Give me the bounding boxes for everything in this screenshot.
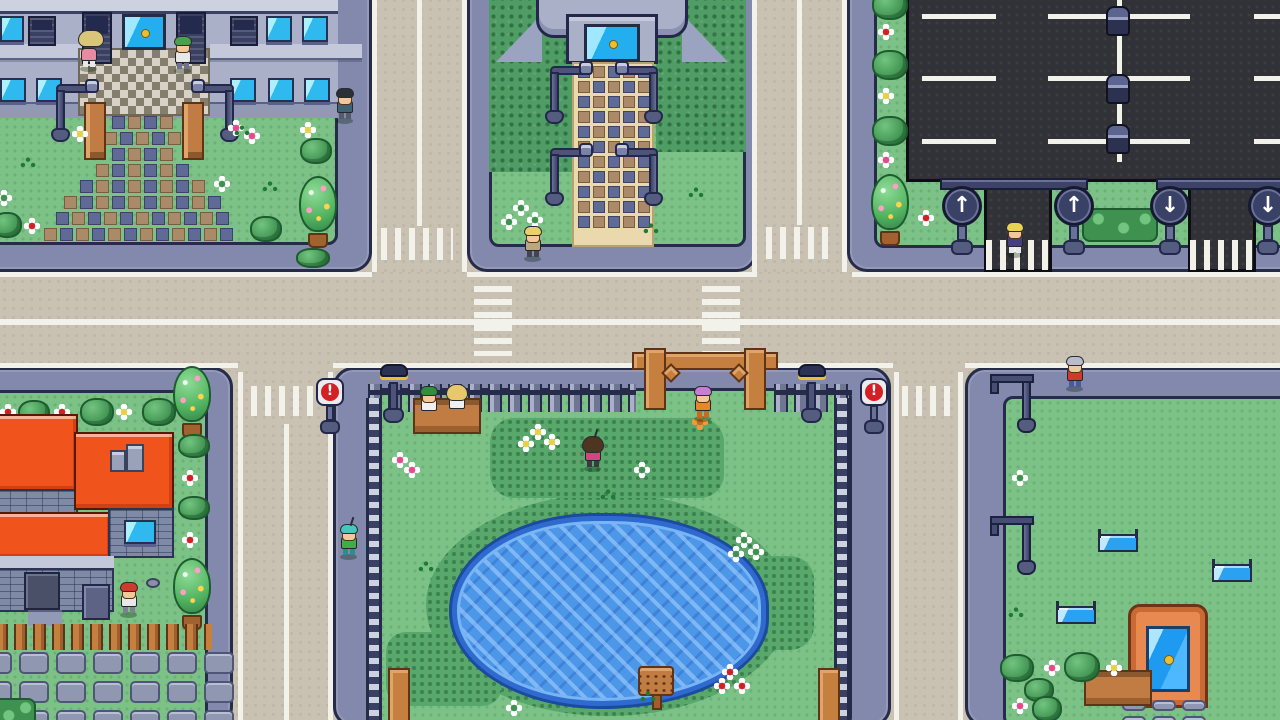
road-edge-line — [467, 272, 757, 277]
mosaic-tile — [144, 116, 157, 129]
flower-white — [0, 190, 12, 206]
sign-base — [864, 420, 884, 434]
mosaic-tile — [140, 228, 153, 241]
down-arrow-icon: ↓ — [1248, 186, 1280, 226]
grass-tuft — [1008, 606, 1024, 618]
lane-line — [372, 0, 377, 272]
lamp-base — [1017, 418, 1036, 433]
mosaic-tile — [160, 196, 173, 209]
tree — [870, 174, 910, 246]
window — [0, 16, 24, 42]
sign-base — [320, 420, 340, 434]
lane-line — [894, 372, 899, 720]
parking-stall-line — [1254, 76, 1280, 81]
paving-slab — [167, 681, 197, 703]
apartment-ledge — [210, 44, 362, 60]
bush — [296, 248, 330, 268]
flower-daisy — [544, 434, 560, 450]
path-tile — [593, 81, 605, 93]
grass-tuft — [688, 186, 704, 198]
mosaic-tile — [144, 148, 157, 161]
hedge-bush — [872, 50, 908, 80]
mosaic-tile — [208, 196, 221, 209]
npc-green-cap-man[interactable] — [172, 36, 196, 72]
lamp-cap — [798, 364, 826, 377]
mosaic-tile — [136, 132, 149, 145]
paving-slab — [0, 652, 12, 674]
park-gate-post — [744, 348, 766, 410]
sign-base — [1159, 240, 1181, 255]
parking-bollard — [1106, 74, 1130, 104]
lamp-pole — [56, 90, 65, 130]
mosaic-tile — [60, 228, 73, 241]
tower-door[interactable] — [584, 24, 640, 62]
lamp-knob — [579, 143, 593, 157]
street-lamp — [546, 60, 594, 126]
mosaic-tile — [96, 164, 109, 177]
terrace-window — [1056, 606, 1096, 624]
mosaic-tile — [72, 212, 85, 225]
mosaic-tile — [144, 196, 157, 209]
sign-post — [1165, 225, 1175, 241]
tree — [298, 176, 338, 248]
path-tile — [593, 186, 605, 198]
npc-blonde-woman[interactable] — [78, 30, 104, 70]
house-roof — [0, 414, 78, 492]
street-lamp — [546, 142, 594, 208]
flower-red — [918, 210, 934, 226]
parking-stall-line — [1124, 14, 1190, 19]
paving-slab — [93, 681, 123, 703]
paving-slab — [1152, 700, 1176, 711]
tree-crown — [173, 558, 211, 614]
lane-line — [958, 372, 963, 720]
mosaic-tile — [168, 132, 181, 145]
mosaic-tile — [128, 164, 141, 177]
mosaic-tile — [112, 116, 125, 129]
mosaic-tile — [184, 212, 197, 225]
npc-dark-haired-man[interactable] — [334, 88, 356, 122]
path-tile — [593, 111, 605, 123]
parking-stall-line — [922, 139, 996, 144]
park-south-post — [818, 668, 840, 720]
park-fence-north — [368, 384, 636, 412]
path-tile — [593, 66, 605, 78]
paving-slab — [1182, 700, 1206, 711]
down-arrow-icon: ↓ — [1150, 186, 1190, 226]
lamp-pole — [649, 154, 658, 194]
lamp-knob — [191, 79, 205, 93]
mosaic-tile — [92, 228, 105, 241]
npc-hair — [582, 436, 604, 453]
mosaic-tile — [112, 164, 125, 177]
flower-pink — [878, 152, 894, 168]
mosaic-tile — [104, 212, 117, 225]
crosswalk — [766, 227, 834, 259]
road-edge-line — [0, 272, 372, 277]
path-tile — [623, 216, 635, 228]
park-fence-west — [366, 398, 382, 720]
mosaic-tile — [156, 228, 169, 241]
sign-base — [1257, 240, 1279, 255]
terrace-top — [1070, 398, 1280, 522]
path-tile — [578, 216, 590, 228]
tree-crown — [173, 366, 211, 422]
flower-white — [728, 546, 744, 562]
crosswalk — [474, 286, 512, 356]
flower-daisy — [518, 436, 534, 452]
flower-red — [734, 678, 750, 694]
lamp-base — [51, 128, 70, 142]
terrace-window — [1212, 564, 1252, 582]
flower-red — [182, 532, 198, 548]
game-viewport: ↑↑↓↓!! — [0, 0, 1280, 720]
sign-base — [1063, 240, 1085, 255]
mosaic-tile — [176, 196, 189, 209]
up-arrow-icon: ↑ — [1054, 186, 1094, 226]
warning-sign[interactable]: ! — [316, 378, 348, 436]
path-tile — [593, 216, 605, 228]
paving-slab — [19, 652, 49, 674]
paving-slab — [204, 652, 234, 674]
sign-head: ! — [860, 378, 888, 406]
lamp-stub — [990, 381, 999, 394]
flower-pink — [404, 462, 420, 478]
street-lamp — [614, 60, 662, 126]
npc-purple-haired-girl[interactable] — [692, 386, 714, 420]
house-window — [124, 520, 156, 544]
tree-planter — [880, 231, 900, 246]
lane-line — [238, 372, 243, 720]
exclamation-icon: ! — [321, 383, 339, 401]
lamp-base — [801, 408, 822, 423]
up-arrow-icon: ↑ — [942, 186, 982, 226]
mosaic-tile — [160, 164, 173, 177]
lamp-base — [644, 110, 663, 124]
mosaic-tile — [80, 196, 93, 209]
npc-bench-sitter-leaf[interactable] — [418, 386, 440, 420]
flower-red — [24, 218, 40, 234]
mosaic-tile — [168, 212, 181, 225]
bush — [178, 496, 210, 520]
mosaic-tile — [80, 180, 93, 193]
sign-post — [326, 405, 334, 421]
mosaic-tile — [112, 148, 125, 161]
road-edge-line — [852, 272, 1280, 277]
mosaic-tile — [152, 132, 165, 145]
parking-bollard — [1106, 6, 1130, 36]
flower-red — [878, 24, 894, 40]
paving-slab — [1122, 716, 1146, 720]
tree-crown — [299, 176, 337, 232]
flower-white — [748, 544, 764, 560]
mosaic-tile — [192, 180, 205, 193]
terrace-window — [1098, 534, 1138, 552]
parking-exit-sign[interactable]: ↓ — [1248, 186, 1280, 256]
parking-stall-line — [922, 76, 996, 81]
parking-stall-line — [1124, 139, 1190, 144]
npc-blonde-walker[interactable] — [522, 226, 544, 260]
path-tile — [593, 126, 605, 138]
npc-afro-girl[interactable] — [582, 436, 604, 470]
grass-tuft — [643, 222, 659, 234]
lamp-base — [383, 408, 404, 423]
mosaic-tile — [64, 196, 77, 209]
flower-white — [214, 176, 230, 192]
paving-slab — [93, 710, 123, 720]
parking-entrance-sign[interactable]: ↑ — [1054, 186, 1098, 256]
paving-slab — [56, 710, 86, 720]
mosaic-tile — [56, 212, 69, 225]
mosaic-tile — [128, 148, 141, 161]
exclamation-icon: ! — [865, 383, 883, 401]
flower-red — [182, 470, 198, 486]
mosaic-tile — [124, 228, 137, 241]
sign-post — [1263, 225, 1273, 241]
mosaic-tile — [204, 228, 217, 241]
mosaic-tile — [108, 228, 121, 241]
mosaic-tile — [96, 196, 109, 209]
paving-slab — [167, 710, 197, 720]
grass-tuft — [418, 560, 434, 572]
lamp-knob — [615, 143, 629, 157]
flower-pink — [1044, 660, 1060, 676]
mosaic-tile — [128, 180, 141, 193]
npc-teal-kid[interactable] — [338, 524, 360, 558]
npc-body — [81, 48, 97, 61]
paving-slab — [130, 681, 160, 703]
npc-hair — [524, 226, 542, 236]
npc-hair — [336, 88, 354, 98]
wooden-fence — [0, 624, 212, 650]
grass-tuft — [234, 124, 250, 136]
mosaic-tile — [112, 180, 125, 193]
sign-base — [951, 240, 973, 255]
npc-red-cap-man[interactable] — [118, 582, 140, 616]
hedge — [0, 698, 36, 720]
grass-tuft — [640, 690, 656, 702]
mosaic-tile — [176, 164, 189, 177]
flower-white — [506, 700, 522, 716]
npc-hair — [446, 384, 468, 401]
mosaic-tile — [144, 180, 157, 193]
npc-hair — [120, 582, 138, 592]
parking-stall-line — [922, 14, 996, 19]
house-door[interactable] — [24, 572, 60, 610]
mosaic-tile — [172, 228, 185, 241]
parking-stall-line — [1254, 139, 1280, 144]
sign-head: ! — [316, 378, 344, 406]
parking-exit-sign[interactable]: ↓ — [1150, 186, 1194, 256]
path-tile — [638, 126, 650, 138]
flower-yellow — [72, 126, 88, 142]
lane-line — [752, 0, 757, 272]
park-south-post — [388, 668, 410, 720]
path-tile — [593, 141, 605, 153]
lamp-base — [545, 192, 564, 206]
mosaic-tile — [128, 116, 141, 129]
npc-parking-kid[interactable] — [1004, 222, 1026, 256]
flower-yellow — [878, 88, 894, 104]
paving-slab — [167, 652, 197, 674]
bush — [178, 434, 210, 458]
flower-yellow — [116, 404, 132, 420]
park-lamp — [798, 364, 826, 424]
crosswalk — [702, 286, 740, 356]
npc-bench-sitter-blonde[interactable] — [446, 384, 468, 418]
parking-entrance-sign[interactable]: ↑ — [942, 186, 986, 256]
npc-elder[interactable] — [1064, 356, 1086, 390]
mosaic-tile — [160, 180, 173, 193]
parking-stall-line — [1254, 14, 1280, 19]
lamp-cap — [380, 364, 408, 377]
mosaic-tile — [152, 212, 165, 225]
paving-slab — [1182, 716, 1206, 720]
sign-post — [870, 405, 878, 421]
path-tile — [608, 126, 620, 138]
parking-stall-line — [1124, 76, 1190, 81]
path-tile — [593, 171, 605, 183]
lamp-knob — [615, 61, 629, 75]
sign-post — [957, 225, 967, 241]
npc-hair — [694, 386, 712, 396]
mosaic-tile — [128, 196, 141, 209]
driveway-stripes — [1190, 240, 1254, 270]
park-lamp — [380, 364, 408, 424]
mosaic-tile — [136, 212, 149, 225]
sign-post — [1069, 225, 1079, 241]
house-roof — [0, 512, 112, 560]
flower-white — [501, 214, 517, 230]
crosswalk — [902, 386, 956, 416]
mosaic-tile — [44, 228, 57, 241]
mosaic-tile — [160, 116, 173, 129]
paving-slab — [93, 652, 123, 674]
mosaic-tile — [88, 212, 101, 225]
paving-slab — [56, 681, 86, 703]
mosaic-tile — [188, 228, 201, 241]
npc-hair — [174, 36, 192, 46]
mosaic-tile — [216, 212, 229, 225]
paving-slab — [204, 681, 234, 703]
paving-slab — [1152, 716, 1176, 720]
lamp-pole — [550, 72, 559, 112]
npc-hair — [1006, 222, 1024, 232]
paving-slab — [56, 652, 86, 674]
lane-line — [842, 0, 847, 272]
apartment-roofline — [0, 0, 338, 14]
mosaic-tile — [160, 148, 173, 161]
npc-hair — [78, 30, 104, 47]
window — [302, 16, 328, 42]
lamp-pole — [649, 72, 658, 112]
tree — [172, 366, 212, 438]
parking-lot — [906, 0, 1280, 182]
lane-line — [797, 0, 802, 225]
flower-white — [634, 462, 650, 478]
grass-tuft — [600, 488, 616, 500]
crosswalk — [381, 228, 453, 260]
mosaic-tile — [120, 212, 133, 225]
mosaic-tile — [192, 196, 205, 209]
flower-yellow — [1106, 660, 1122, 676]
lane-line — [284, 424, 289, 720]
grass-tuft — [262, 180, 278, 192]
path-tile — [608, 216, 620, 228]
mailbox[interactable] — [82, 584, 110, 620]
grass-tuft — [20, 156, 36, 168]
mosaic-tile — [112, 196, 125, 209]
mosaic-tile — [144, 164, 157, 177]
flower-pink — [1012, 698, 1028, 714]
mosaic-tile — [176, 180, 189, 193]
lamp-base — [545, 110, 564, 124]
terraced-door[interactable] — [1146, 626, 1190, 692]
lamp-knob — [579, 61, 593, 75]
path-tile — [593, 156, 605, 168]
tree — [172, 558, 212, 630]
window — [266, 16, 292, 42]
paving-slab — [130, 652, 160, 674]
rock — [146, 578, 160, 588]
bush — [1032, 696, 1062, 720]
path-tile — [593, 201, 605, 213]
window — [0, 78, 26, 102]
road-edge-line — [965, 363, 1280, 368]
bush — [1000, 654, 1034, 682]
warning-sign[interactable]: ! — [860, 378, 892, 436]
flower-pink — [300, 122, 316, 138]
lane-line — [462, 0, 467, 272]
street-lamp — [614, 142, 662, 208]
paving-slab — [204, 710, 234, 720]
mosaic-tile — [96, 180, 109, 193]
tree-planter — [308, 233, 328, 248]
path-tile — [578, 126, 590, 138]
npc-hair — [420, 386, 438, 396]
window — [268, 78, 294, 102]
mosaic-tile — [76, 228, 89, 241]
utility-panel — [28, 16, 56, 46]
bush — [80, 398, 114, 426]
path-tile — [593, 96, 605, 108]
park-meadow — [490, 418, 724, 498]
utility-panel — [230, 16, 258, 46]
mosaic-tile — [120, 132, 133, 145]
hedge-bush — [872, 116, 908, 146]
road-center-line — [0, 319, 1280, 325]
paving-slab — [130, 710, 160, 720]
lamp-pole — [550, 154, 559, 194]
plaza-slabs — [0, 652, 12, 674]
npc-hair — [1066, 356, 1084, 366]
lamp-pole — [1022, 381, 1031, 421]
lamp-knob — [85, 79, 99, 93]
roof-vent — [110, 450, 126, 472]
mosaic-tile — [220, 228, 233, 241]
flower-red — [714, 678, 730, 694]
crosswalk — [251, 386, 315, 416]
bush — [142, 398, 176, 426]
lamp-base — [644, 192, 663, 206]
path-tile — [623, 126, 635, 138]
bush — [250, 216, 282, 242]
tree-crown — [871, 174, 909, 230]
bush — [300, 138, 332, 164]
street-lamp — [988, 372, 1040, 434]
lane-line — [417, 0, 422, 226]
apartment-door[interactable] — [122, 14, 166, 50]
